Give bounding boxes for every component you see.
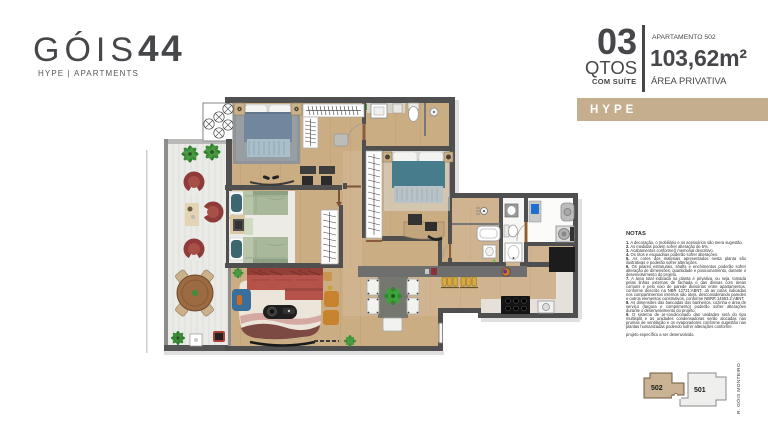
svg-text:502: 502 [651,385,663,392]
svg-text:501: 501 [694,387,706,394]
